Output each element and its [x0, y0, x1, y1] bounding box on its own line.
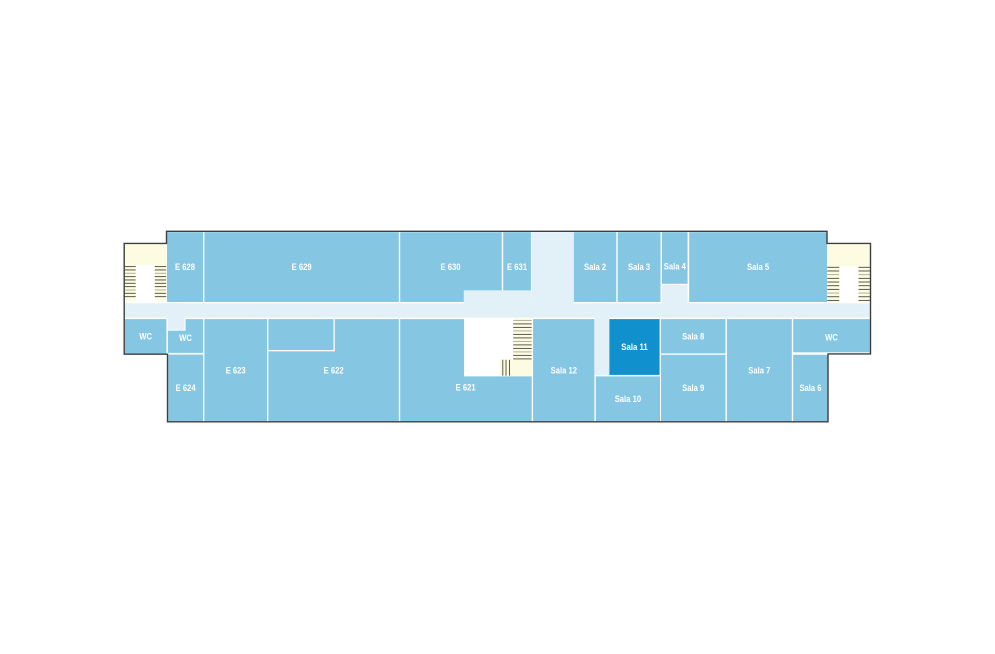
svg-text:WC: WC: [825, 332, 838, 342]
svg-text:E 623: E 623: [226, 365, 246, 375]
svg-text:Sala 10: Sala 10: [615, 394, 641, 404]
svg-text:Sala 7: Sala 7: [748, 365, 770, 375]
svg-text:Sala 9: Sala 9: [682, 383, 704, 393]
svg-text:E 629: E 629: [292, 262, 312, 272]
svg-text:Sala 2: Sala 2: [584, 262, 606, 272]
svg-text:Sala 8: Sala 8: [682, 331, 704, 341]
svg-text:Sala 11: Sala 11: [621, 342, 647, 352]
svg-text:WC: WC: [139, 331, 152, 341]
svg-text:E 622: E 622: [324, 365, 344, 375]
svg-text:E 631: E 631: [507, 262, 527, 272]
svg-text:Sala 5: Sala 5: [747, 262, 769, 272]
svg-text:Sala 6: Sala 6: [799, 383, 821, 393]
svg-text:WC: WC: [179, 333, 192, 343]
svg-text:Sala 12: Sala 12: [551, 365, 577, 375]
svg-text:E 630: E 630: [441, 262, 461, 272]
svg-text:Sala 4: Sala 4: [664, 262, 686, 272]
svg-text:E 621: E 621: [456, 383, 476, 393]
svg-text:E 624: E 624: [176, 383, 196, 393]
svg-text:Sala 3: Sala 3: [628, 262, 650, 272]
svg-text:E 628: E 628: [175, 262, 195, 272]
